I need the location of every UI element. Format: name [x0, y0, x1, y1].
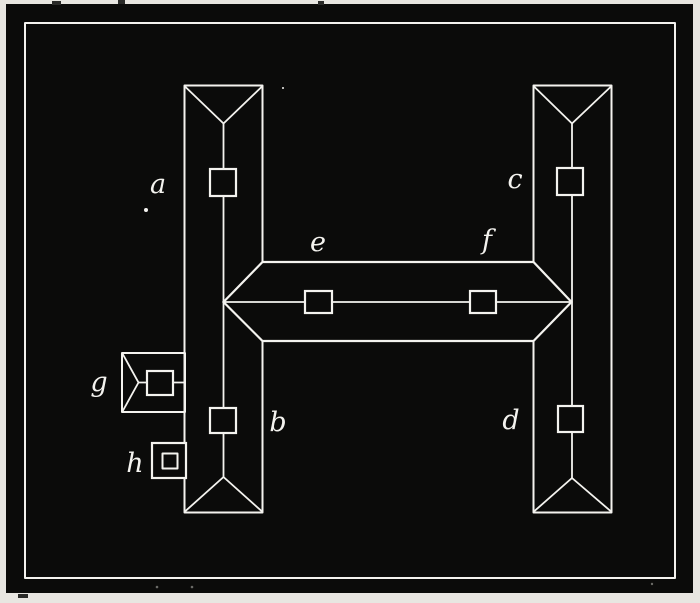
plate-edge-blemish — [118, 0, 125, 4]
figure-page: a b c d e f g h — [0, 0, 700, 603]
chimney-f — [470, 291, 496, 313]
ink-speck — [282, 87, 284, 89]
ink-speck — [651, 583, 653, 585]
middle-roof — [224, 262, 572, 341]
chimney-a — [210, 169, 236, 196]
plate-edge-blemish — [52, 1, 61, 5]
ink-speck — [144, 208, 148, 212]
label-h: h — [126, 448, 143, 479]
label-a: a — [150, 169, 166, 200]
annex-h — [152, 443, 186, 478]
label-e: e — [310, 227, 326, 258]
chimney-e — [305, 291, 332, 313]
label-d: d — [502, 405, 519, 436]
ink-speck — [191, 586, 194, 589]
chimney-d — [558, 406, 583, 432]
label-g: g — [90, 367, 107, 398]
plate-edge-blemish — [18, 594, 28, 598]
chimney-c — [557, 168, 583, 195]
label-c: c — [507, 164, 522, 195]
chimney-b — [210, 408, 236, 433]
chimney-g — [147, 371, 173, 395]
plate-edge-blemish — [318, 1, 324, 5]
ink-speck — [156, 586, 159, 589]
roof-plan-figure: a b c d e f g h — [0, 0, 700, 603]
label-b: b — [269, 407, 286, 438]
annex-h-outline — [152, 443, 186, 478]
